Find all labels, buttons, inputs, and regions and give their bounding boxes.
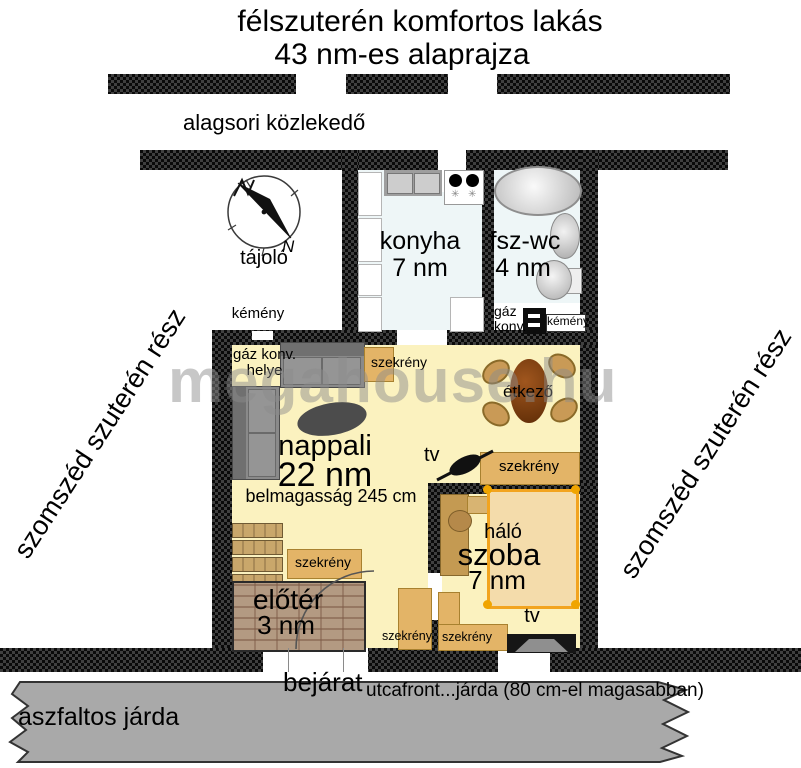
page-title-line1: félszuterén komfortos lakás [237,6,602,38]
wall-bottom-outer [0,648,801,672]
chimney-left-label: kémény [232,306,285,322]
kitchen-name: konyha [380,228,461,254]
entrance-label: bejárat [283,669,363,696]
bed-corner-dot [571,600,580,609]
wc-area: 4 nm [495,255,551,281]
living-ceiling-height: belmagasság 245 cm [245,487,416,506]
cabinet-bedroom-vert [438,592,460,626]
kitchen-stove-icon: ✳ ✳ [444,170,484,205]
kitchen-counter-2 [358,218,382,262]
window-gap-top-2 [448,74,497,94]
sidewalk-label: aszfaltos járda [18,704,179,730]
hall-area: 3 nm [257,612,315,639]
wall-corridor-south [140,150,728,170]
door-gap-corridor [438,150,466,170]
gas-convector-wc-label: gáz konv. [494,304,526,333]
door-gap-kitchen-living [397,330,447,345]
wall-kitchen-left [342,150,358,345]
kitchen-counter-3 [358,264,382,296]
bedroom-chair [448,510,472,532]
stair-step-2 [232,540,283,555]
corridor-label: alagsori közlekedő [183,111,365,134]
stair-step-3 [232,557,283,572]
chimney-block-icon [523,308,546,334]
bathtub-icon [494,166,582,216]
cabinet-bedroom-label: szekrény [442,631,492,644]
page-title-line2: 43 nm-es alaprajza [274,39,529,71]
neighbor-left-label: szomszéd szuterén rész [0,284,204,583]
kitchen-area: 7 nm [392,255,448,281]
window-gap-top-1 [296,74,346,94]
watermark: megahouse.hu [168,346,618,417]
tv-bedroom-label: tv [524,606,540,627]
bed-corner-dot [483,600,492,609]
kitchen-counter-5 [450,297,484,332]
tv-living-icon [435,443,495,485]
kitchen-counter-1 [358,172,382,216]
kitchen-sink-icon [384,170,442,196]
wc-name: fsz-wc [490,228,561,254]
kitchen-counter-4 [358,297,382,332]
cabinet-right-label: szekrény [499,459,559,475]
street-note-label: utcafront...járda (80 cm-el magasabban) [366,681,704,701]
chimney-right-label: kémény [546,314,586,332]
cabinet-living-br-label: szekrény [382,630,432,643]
tv-bedroom-icon [507,634,576,653]
bed-corner-dot [571,485,580,494]
compass-label: tájoló [240,248,288,269]
floor-plan: félszuterén komfortos lakás 43 nm-es ala… [0,0,801,768]
neighbor-right-label: szomszéd szuterén rész [602,304,801,603]
bed-corner-dot [483,485,492,494]
chimney-notch [252,331,273,340]
stair-step-1 [232,523,283,538]
bedroom-area: 7 nm [468,567,526,594]
wall-top-outer [108,74,730,94]
